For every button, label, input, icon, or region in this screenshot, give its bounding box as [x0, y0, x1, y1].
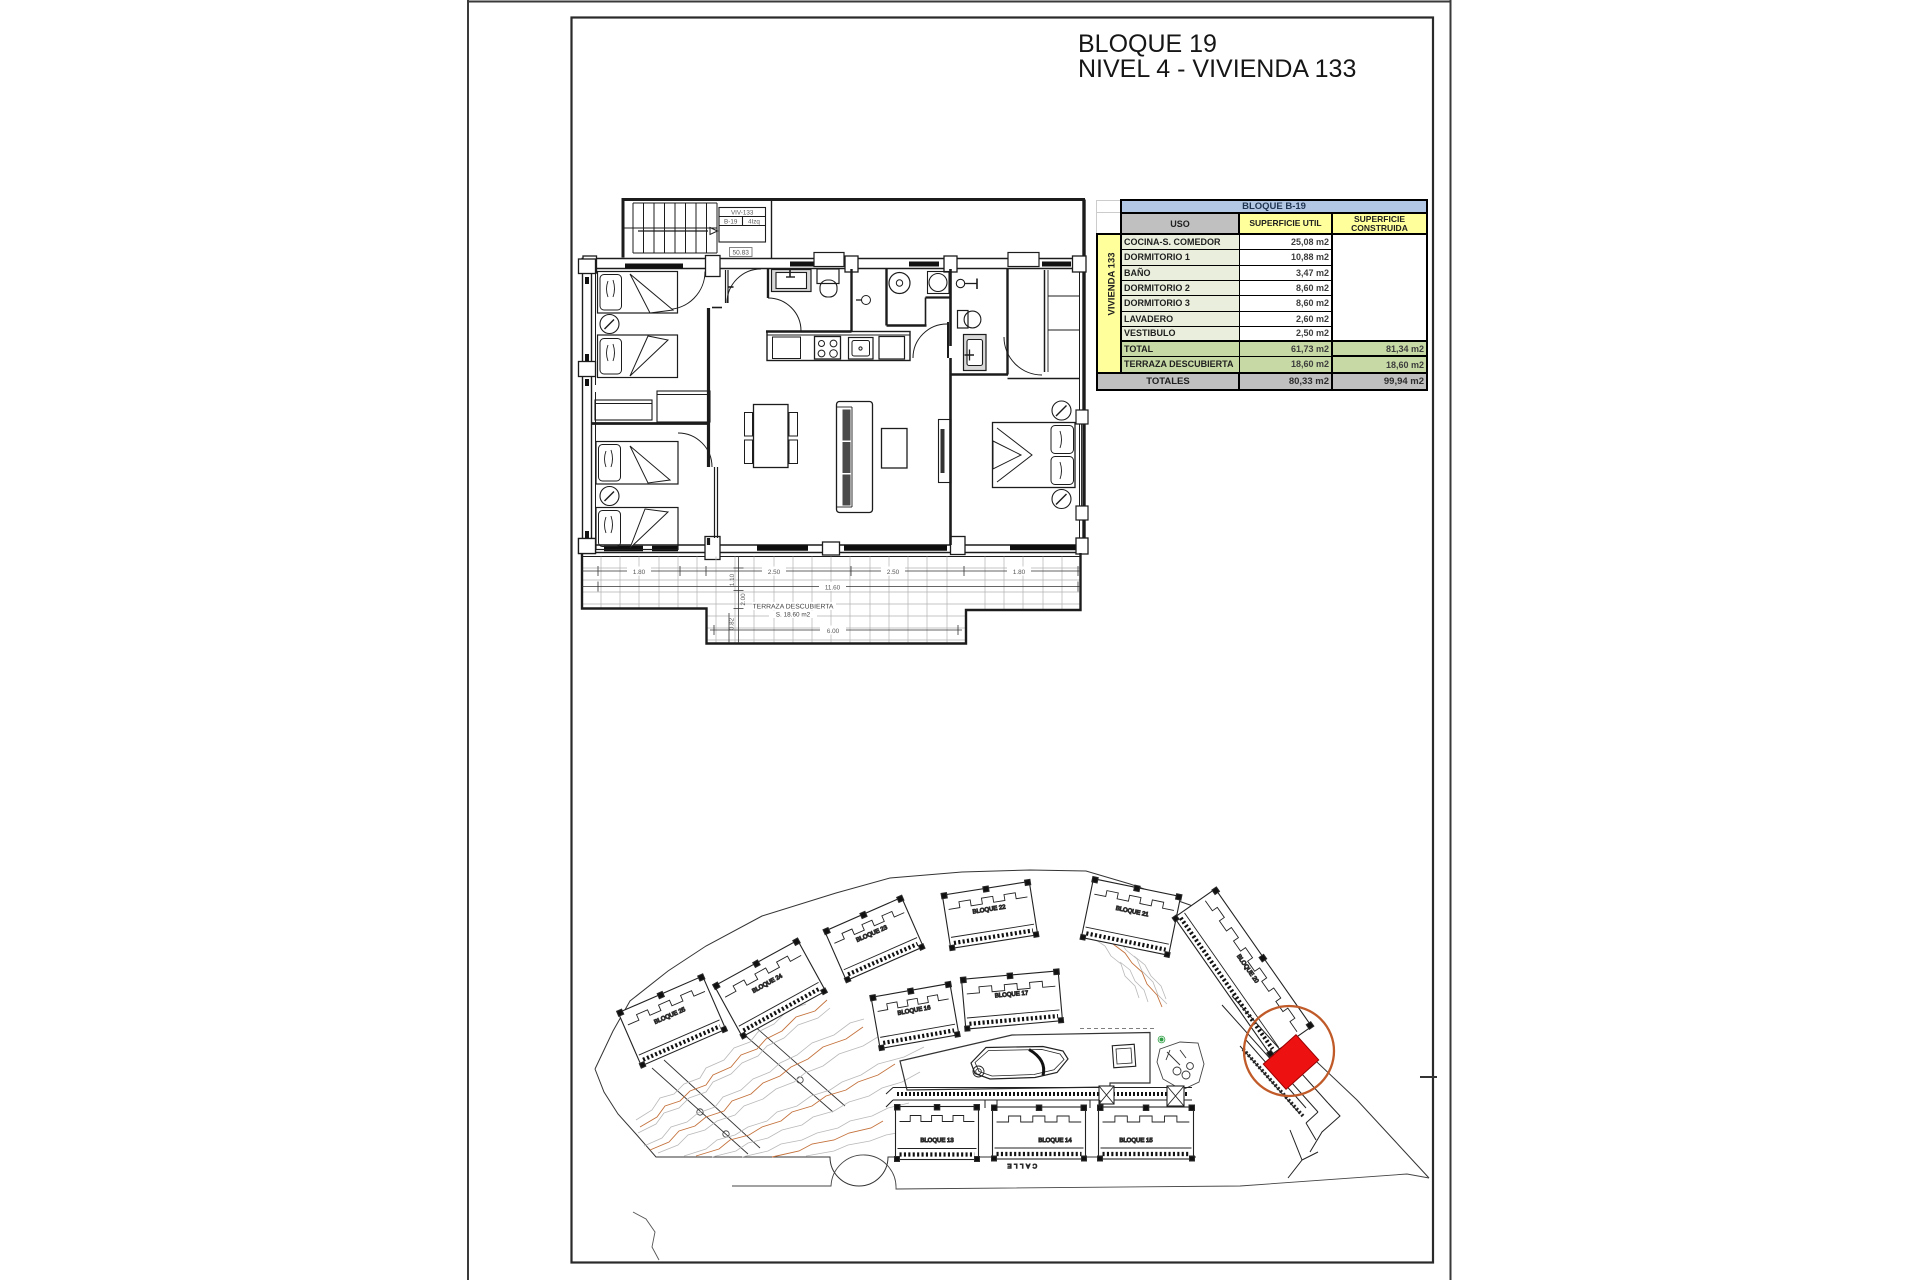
svg-text:VIV-133: VIV-133: [731, 209, 754, 216]
svg-text:6.00: 6.00: [827, 628, 840, 635]
svg-text:2.50: 2.50: [887, 569, 900, 576]
svg-text:0.82: 0.82: [729, 617, 736, 630]
svg-text:S. 18.60 m2: S. 18.60 m2: [776, 612, 811, 619]
svg-text:2.50: 2.50: [768, 569, 781, 576]
svg-text:BLOQUE 15: BLOQUE 15: [1119, 1137, 1153, 1144]
svg-text:50.83: 50.83: [732, 250, 749, 257]
svg-text:BLOQUE 14: BLOQUE 14: [1038, 1137, 1072, 1144]
svg-text:CALLE: CALLE: [1005, 1162, 1037, 1169]
svg-text:2.00: 2.00: [740, 593, 747, 606]
svg-text:BLOQUE 13: BLOQUE 13: [920, 1137, 954, 1144]
svg-text:1.10: 1.10: [729, 573, 736, 586]
svg-text:TERRAZA DESCUBIERTA: TERRAZA DESCUBIERTA: [753, 604, 834, 611]
svg-text:4Izq: 4Izq: [748, 218, 760, 225]
svg-text:1.80: 1.80: [633, 569, 646, 576]
svg-text:11.60: 11.60: [825, 584, 841, 591]
svg-text:B-19: B-19: [724, 218, 738, 225]
svg-text:1.80: 1.80: [1013, 569, 1026, 576]
